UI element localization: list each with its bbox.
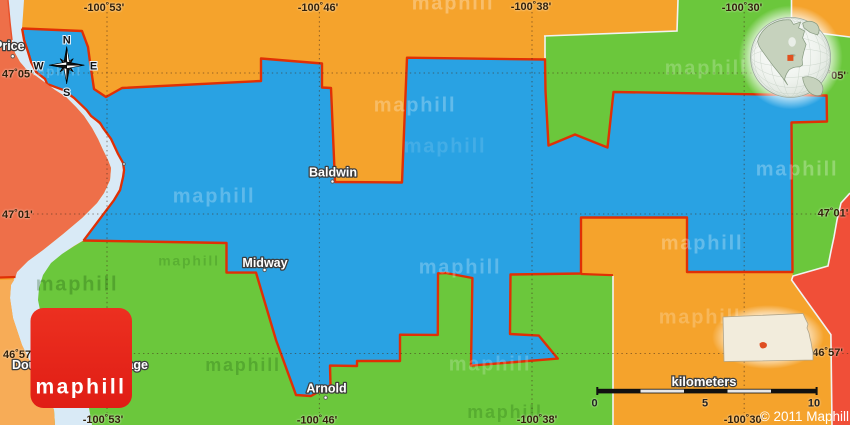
svg-text:maphill: maphill xyxy=(665,57,748,79)
svg-text:-100˚46': -100˚46' xyxy=(297,415,338,425)
svg-text:maphill: maphill xyxy=(374,94,457,116)
svg-text:-100˚38': -100˚38' xyxy=(511,1,552,13)
svg-text:S: S xyxy=(63,87,70,99)
svg-text:-100˚53': -100˚53' xyxy=(84,2,125,14)
svg-text:47˚01': 47˚01' xyxy=(818,208,849,220)
svg-text:-100˚30': -100˚30' xyxy=(724,414,765,425)
svg-text:maphill: maphill xyxy=(419,256,502,278)
svg-text:Midway: Midway xyxy=(242,256,287,270)
svg-text:W: W xyxy=(33,60,44,72)
svg-text:© 2011 Maphill: © 2011 Maphill xyxy=(760,409,849,424)
svg-text:-100˚46': -100˚46' xyxy=(298,2,339,14)
svg-text:N: N xyxy=(63,35,71,47)
svg-text:46˚57': 46˚57' xyxy=(3,349,34,361)
svg-text:47˚01': 47˚01' xyxy=(2,209,33,221)
svg-text:E: E xyxy=(90,60,97,72)
svg-text:Baldwin: Baldwin xyxy=(309,166,357,180)
svg-text:maphill: maphill xyxy=(404,135,487,157)
svg-text:-100˚53': -100˚53' xyxy=(83,414,124,425)
svg-text:kilometers: kilometers xyxy=(671,374,736,389)
svg-text:maphill: maphill xyxy=(158,253,220,269)
svg-text:-100˚30': -100˚30' xyxy=(722,2,763,14)
svg-text:47˚05': 47˚05' xyxy=(2,69,33,81)
svg-text:0: 0 xyxy=(591,398,597,410)
svg-text:-100˚38': -100˚38' xyxy=(517,414,558,425)
svg-text:Price: Price xyxy=(0,39,25,53)
svg-text:maphill: maphill xyxy=(36,273,119,295)
svg-text:maphill: maphill xyxy=(661,232,744,254)
svg-text:5: 5 xyxy=(702,398,708,410)
svg-text:maphill: maphill xyxy=(412,0,495,14)
svg-text:maphill: maphill xyxy=(35,376,126,399)
svg-text:maphill: maphill xyxy=(449,353,532,375)
svg-text:maphill: maphill xyxy=(205,355,281,375)
svg-text:maphill: maphill xyxy=(756,158,839,180)
svg-text:10: 10 xyxy=(808,398,820,410)
svg-text:maphill: maphill xyxy=(173,185,256,207)
svg-text:Arnold: Arnold xyxy=(306,382,346,396)
